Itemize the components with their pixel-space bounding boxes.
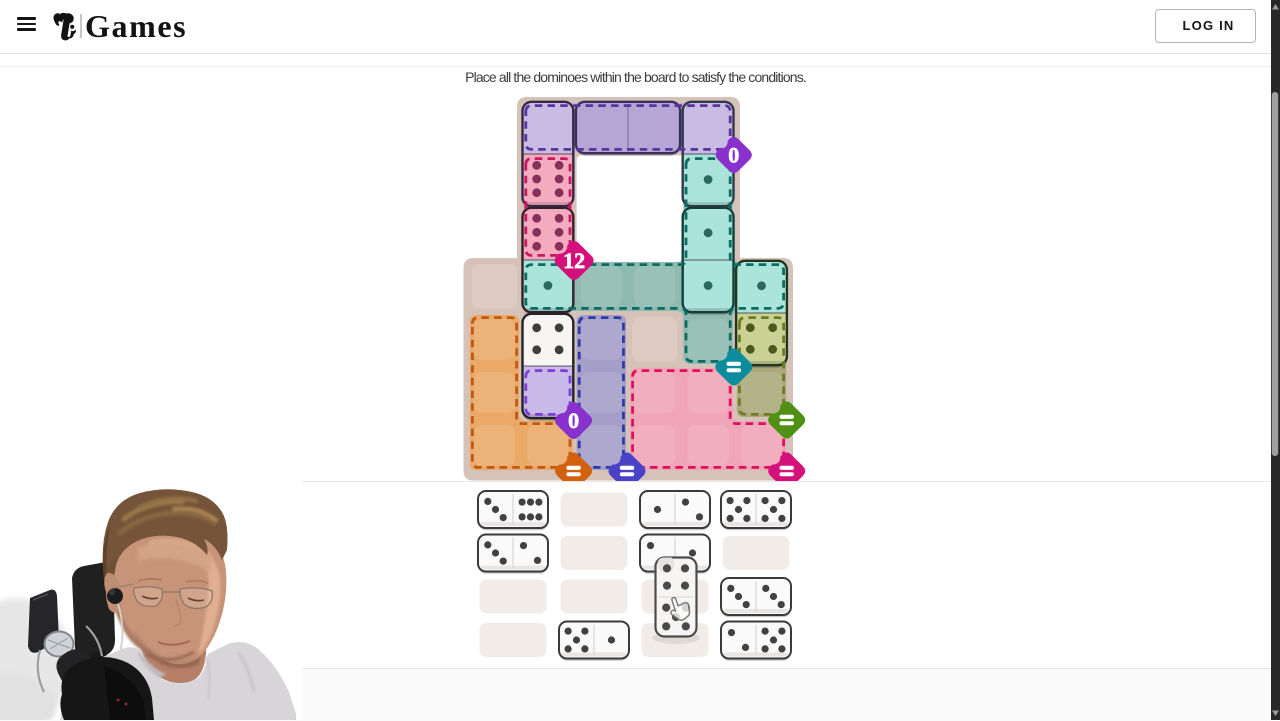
svg-text:0: 0 <box>728 143 739 168</box>
svg-text:0: 0 <box>568 408 579 433</box>
svg-text:12: 12 <box>563 248 585 273</box>
